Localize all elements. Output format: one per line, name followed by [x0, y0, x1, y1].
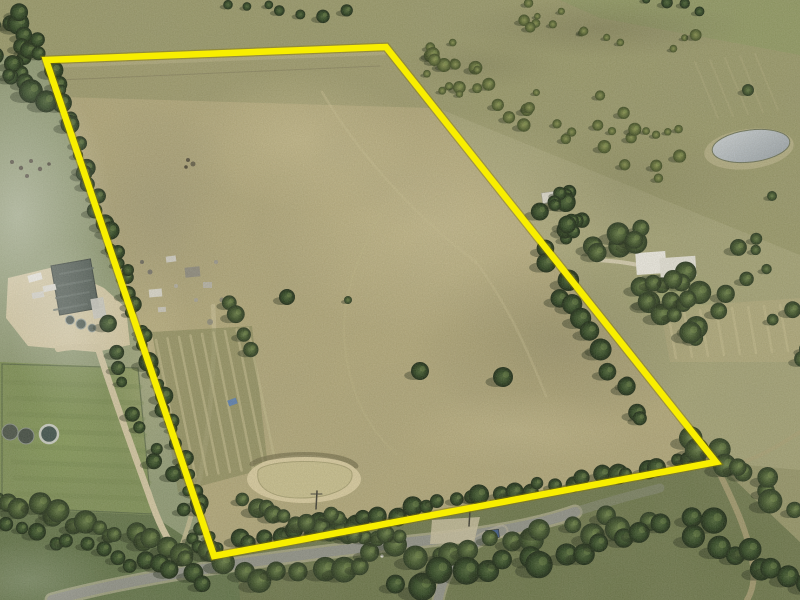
aerial-photo — [0, 0, 800, 600]
aerial-photo-canvas — [0, 0, 800, 600]
